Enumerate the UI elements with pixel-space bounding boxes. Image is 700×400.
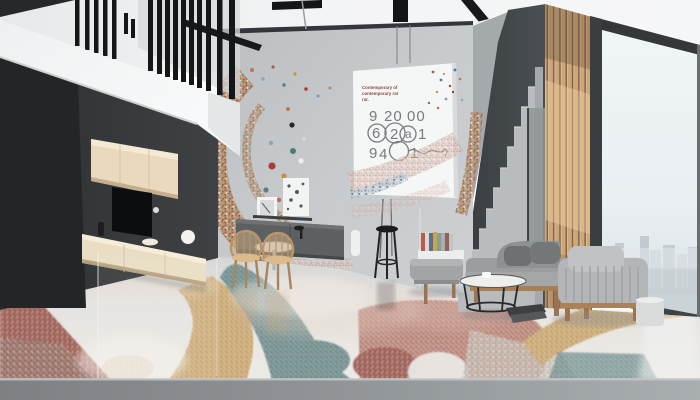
svg-text:9: 9 <box>369 145 377 162</box>
svg-text:00: 00 <box>407 108 426 125</box>
svg-text:1: 1 <box>418 126 426 143</box>
svg-text:9: 9 <box>369 108 377 125</box>
svg-text:Contemporary of: Contemporary of <box>362 85 398 90</box>
svg-text:a: a <box>405 127 412 141</box>
svg-text:rat.: rat. <box>362 97 369 102</box>
svg-text:2: 2 <box>390 126 398 143</box>
svg-text:contemporary rat: contemporary rat <box>362 91 399 96</box>
svg-text:20: 20 <box>384 108 403 125</box>
svg-text:4: 4 <box>379 146 387 163</box>
svg-text:6: 6 <box>372 125 380 142</box>
